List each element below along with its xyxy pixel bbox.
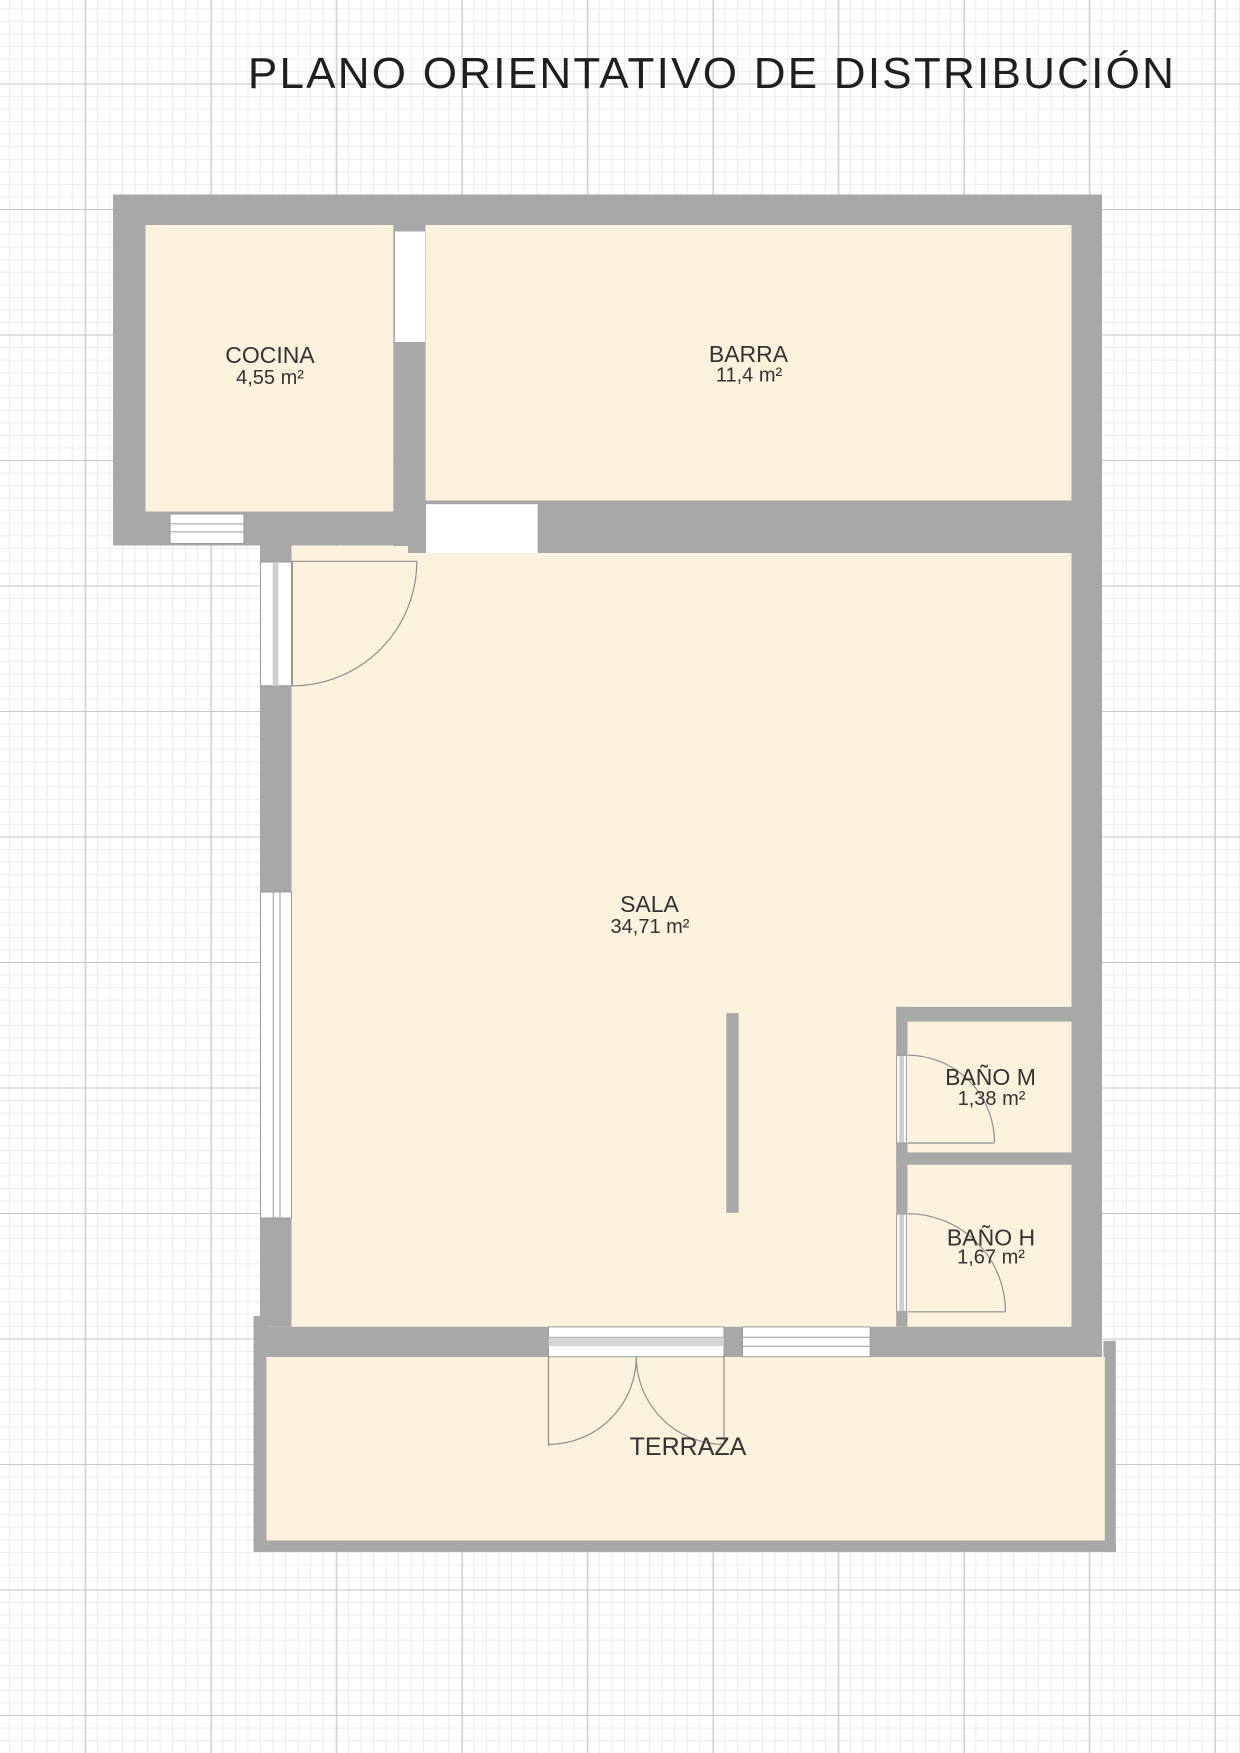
svg-text:1,38 m²: 1,38 m² xyxy=(958,1088,1026,1110)
svg-text:COCINA: COCINA xyxy=(225,342,315,368)
svg-text:1,67 m²: 1,67 m² xyxy=(957,1247,1025,1269)
svg-text:BARRA: BARRA xyxy=(709,341,789,367)
svg-text:34,71 m²: 34,71 m² xyxy=(611,916,690,938)
svg-text:TERRAZA: TERRAZA xyxy=(630,1433,747,1461)
svg-text:BAÑO M: BAÑO M xyxy=(945,1064,1036,1090)
svg-text:PLANO ORIENTATIVO DE DISTRIBUC: PLANO ORIENTATIVO DE DISTRIBUCIÓN xyxy=(248,49,1176,98)
svg-text:4,55 m²: 4,55 m² xyxy=(236,367,304,389)
svg-text:11,4 m²: 11,4 m² xyxy=(716,365,783,387)
svg-text:SALA: SALA xyxy=(620,891,679,917)
